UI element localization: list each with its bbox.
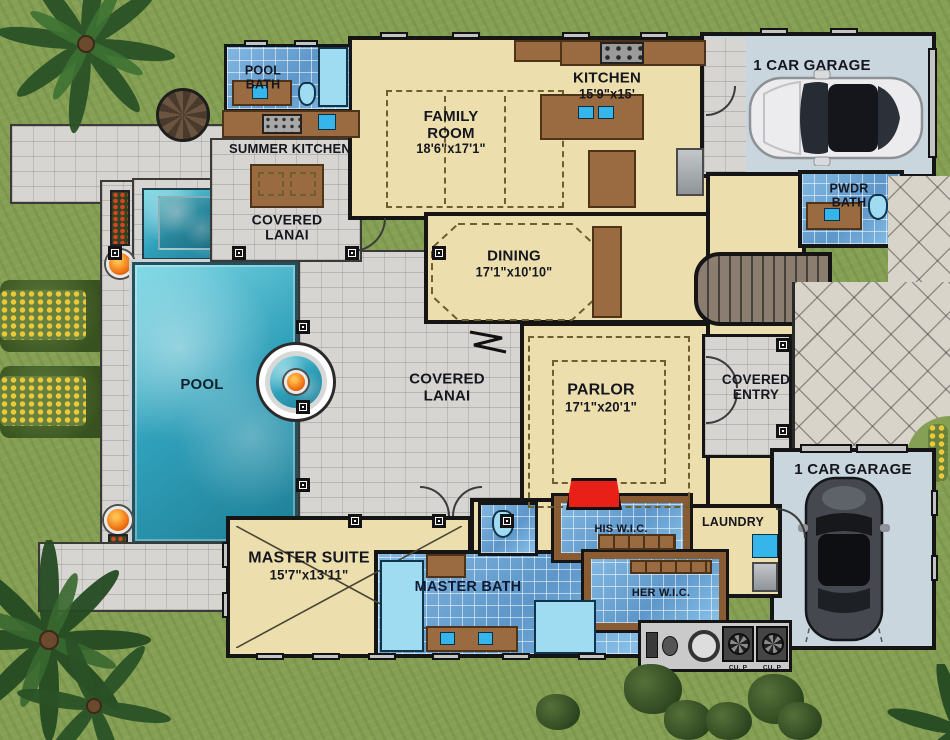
dining-dims: 17'1"x10'10" <box>420 265 608 280</box>
his-wic-label: HIS W.I.C. <box>561 523 681 535</box>
sofa-cushion <box>258 172 284 196</box>
rug-line <box>504 96 506 204</box>
palm-tree <box>872 664 950 740</box>
window <box>760 28 788 35</box>
laundry-name: LAUNDRY <box>673 516 793 530</box>
car-lower-garage <box>798 472 890 646</box>
pool-bath-name: POOL BATH <box>236 64 290 92</box>
window <box>931 555 938 581</box>
window <box>380 32 408 39</box>
garage-lower-label: 1 CAR GARAGE <box>753 462 950 479</box>
sink <box>578 106 594 119</box>
sink <box>440 632 455 645</box>
pwdr-bath-label: PWDR BATH <box>820 182 878 210</box>
her-wic-name: HER W.I.C. <box>591 587 731 599</box>
lanai-column <box>296 320 310 334</box>
summer-kitchen-name: SUMMER KITCHEN <box>195 142 385 156</box>
garage-top-label: 1 CAR GARAGE <box>712 58 912 75</box>
palm-tree <box>0 0 186 156</box>
covered-entry-name: COVERED ENTRY <box>710 373 802 403</box>
window <box>432 653 460 660</box>
window <box>312 653 340 660</box>
driveway <box>888 176 950 286</box>
sink <box>318 114 336 130</box>
shrub <box>664 700 712 740</box>
window <box>931 490 938 516</box>
lanai-column <box>500 514 514 528</box>
window <box>562 32 590 39</box>
cu-label: CU. P <box>723 664 753 671</box>
master-suite-name: MASTER SUITE <box>189 550 429 568</box>
parlor-label: PARLOR 17'1"x20'1" <box>501 382 701 415</box>
lanai-column <box>296 478 310 492</box>
shower <box>318 47 348 107</box>
washer <box>752 534 778 558</box>
window <box>502 653 530 660</box>
palm-tree <box>14 636 174 740</box>
sink <box>478 632 493 645</box>
cu2-name: CU. P <box>757 664 787 671</box>
master-suite-label: MASTER SUITE 15'7"x13'11" <box>189 550 429 583</box>
condenser-fan <box>728 633 750 655</box>
covered-lanai-main-name: COVERED LANAI <box>397 372 497 405</box>
window <box>368 653 396 660</box>
cu-label: CU. P <box>757 664 787 671</box>
garage-door <box>928 48 937 158</box>
spa-inner <box>158 196 220 250</box>
wall-break-symbol <box>468 328 510 358</box>
refrigerator <box>676 148 704 196</box>
kitchen-label: KITCHEN 15'9"x15' <box>507 70 707 101</box>
condenser-fan <box>762 633 784 655</box>
flower-bed <box>0 376 86 426</box>
lanai-column <box>232 246 246 260</box>
shrub <box>706 702 752 740</box>
garage-door <box>800 444 852 453</box>
lanai-column <box>108 246 122 260</box>
sofa-cushion <box>290 172 316 196</box>
dining-label: DINING 17'1"x10'10" <box>414 248 614 279</box>
kitchen-dims: 15'9"x15' <box>513 87 701 102</box>
flower-planter <box>110 190 130 246</box>
family-room-name: FAMILY ROOM <box>404 109 498 142</box>
lanai-column <box>345 246 359 260</box>
fire-bowl <box>104 506 132 534</box>
entry-column <box>776 338 790 352</box>
shrub <box>778 702 822 740</box>
covered-lanai-upper-name: COVERED LANAI <box>241 213 333 244</box>
shrub <box>536 694 580 730</box>
lanai-column <box>432 514 446 528</box>
entry-column <box>776 424 790 438</box>
parlor-rug-inner <box>552 360 666 484</box>
window <box>222 592 229 618</box>
garage-lower-name: 1 CAR GARAGE <box>753 462 950 479</box>
lanai-column <box>348 514 362 528</box>
lanai-sofa <box>250 164 324 208</box>
pool-filter <box>688 630 720 662</box>
closet-shelves <box>630 560 712 574</box>
toilet <box>298 82 316 106</box>
shower <box>534 600 596 654</box>
kitchen-name: KITCHEN <box>507 70 707 87</box>
lanai-column <box>296 400 310 414</box>
closet-shelves <box>598 534 676 550</box>
his-wic-name: HIS W.I.C. <box>561 523 681 535</box>
pool-pump <box>646 632 658 658</box>
dining-name: DINING <box>414 248 614 265</box>
sink <box>824 208 840 221</box>
laundry-label: LAUNDRY <box>673 516 793 530</box>
pool-name: POOL <box>147 377 257 394</box>
dryer <box>752 562 778 592</box>
car-top-garage <box>748 70 924 166</box>
window <box>830 28 858 35</box>
grill <box>262 114 302 134</box>
window <box>640 32 668 39</box>
summer-kitchen-label: SUMMER KITCHEN <box>195 142 385 156</box>
family-room-dims: 18'6"x17'1" <box>407 142 495 157</box>
parlor-name: PARLOR <box>501 382 701 400</box>
flower-bed <box>0 290 86 340</box>
sink <box>598 106 614 119</box>
condenser-unit <box>722 626 754 662</box>
pool-bath-label: POOL BATH <box>236 64 290 92</box>
range <box>600 42 644 64</box>
window <box>256 653 284 660</box>
master-bath-label: MASTER BATH <box>358 580 578 596</box>
window <box>244 40 268 47</box>
window <box>452 32 480 39</box>
floor-plan-scene: POOL BATH SUMMER KITCHEN COVERED LANAI F… <box>0 0 950 740</box>
window <box>294 40 318 47</box>
covered-entry-label: COVERED ENTRY <box>710 373 802 403</box>
pool-pump <box>662 636 678 656</box>
covered-lanai-main-label: COVERED LANAI <box>397 372 497 405</box>
pool-label: POOL <box>147 377 257 394</box>
fire-bowl <box>284 370 308 394</box>
parlor-dims: 17'1"x20'1" <box>507 399 695 414</box>
pwdr-bath-name: PWDR BATH <box>820 182 878 210</box>
covered-lanai-upper-label: COVERED LANAI <box>241 213 333 244</box>
window <box>578 653 606 660</box>
garage-door <box>856 444 908 453</box>
cu1-name: CU. P <box>723 664 753 671</box>
her-wic-label: HER W.I.C. <box>591 587 731 599</box>
condenser-unit <box>756 626 788 662</box>
breakfast-table <box>588 150 636 208</box>
master-bath-name: MASTER BATH <box>358 580 578 596</box>
family-room-label: FAMILY ROOM 18'6"x17'1" <box>404 109 498 157</box>
garage-top-name: 1 CAR GARAGE <box>712 58 912 75</box>
master-vanity-2 <box>426 554 466 578</box>
fireplace <box>566 478 622 510</box>
